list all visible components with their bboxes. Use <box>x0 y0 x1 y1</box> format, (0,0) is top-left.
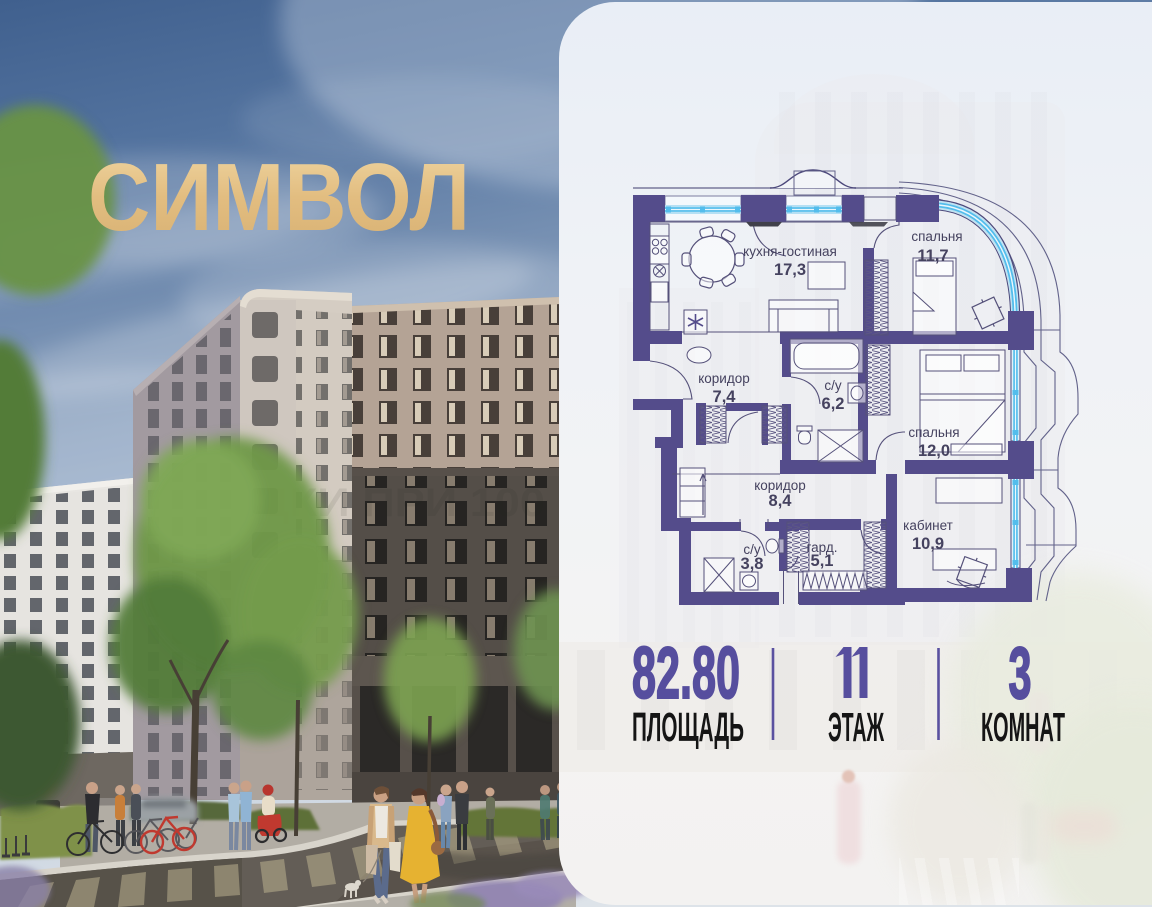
svg-text:кабинет: кабинет <box>903 518 953 533</box>
svg-text:82.80: 82.80 <box>632 633 740 714</box>
svg-text:ЭТАЖ: ЭТАЖ <box>828 704 884 750</box>
svg-text:17,3: 17,3 <box>774 261 806 279</box>
svg-text:3,8: 3,8 <box>741 555 764 573</box>
svg-text:спальня: спальня <box>911 229 962 244</box>
svg-text:10,9: 10,9 <box>912 535 944 553</box>
svg-text:коридор: коридор <box>698 371 750 386</box>
svg-text:СИМВОЛ: СИМВОЛ <box>88 144 470 251</box>
svg-text:КОМНАТ: КОМНАТ <box>981 704 1065 750</box>
svg-text:кухня-гостиная: кухня-гостиная <box>743 244 837 259</box>
svg-text:спальня: спальня <box>908 425 959 440</box>
svg-text:коридор: коридор <box>754 478 806 493</box>
svg-text:3: 3 <box>1009 633 1032 714</box>
svg-text:7,4: 7,4 <box>713 388 737 406</box>
svg-text:5,1: 5,1 <box>811 552 834 570</box>
svg-text:6,2: 6,2 <box>822 395 845 413</box>
svg-text:11,7: 11,7 <box>917 247 948 265</box>
svg-text:8,4: 8,4 <box>769 492 793 510</box>
svg-text:с/у: с/у <box>824 378 842 393</box>
svg-text:12,0: 12,0 <box>918 442 950 460</box>
svg-text:ПЛОЩАДЬ: ПЛОЩАДЬ <box>632 704 744 750</box>
